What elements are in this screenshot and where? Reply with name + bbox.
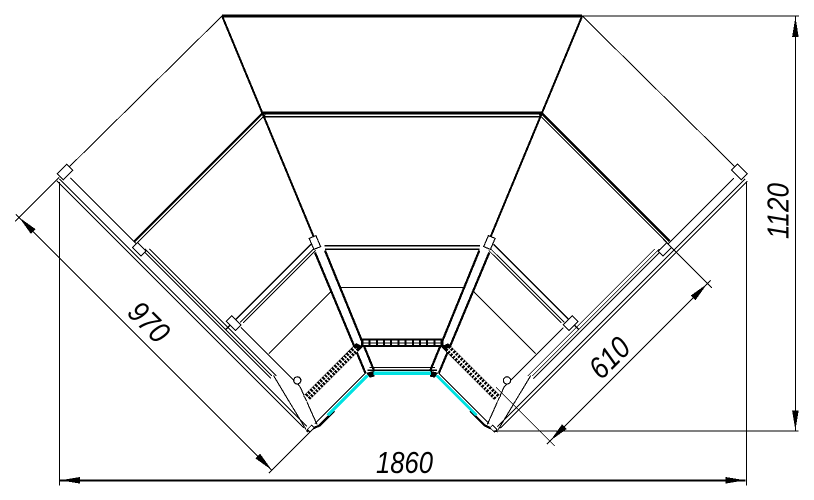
svg-text:1120: 1120 [762,183,796,239]
svg-text:1860: 1860 [376,446,433,480]
